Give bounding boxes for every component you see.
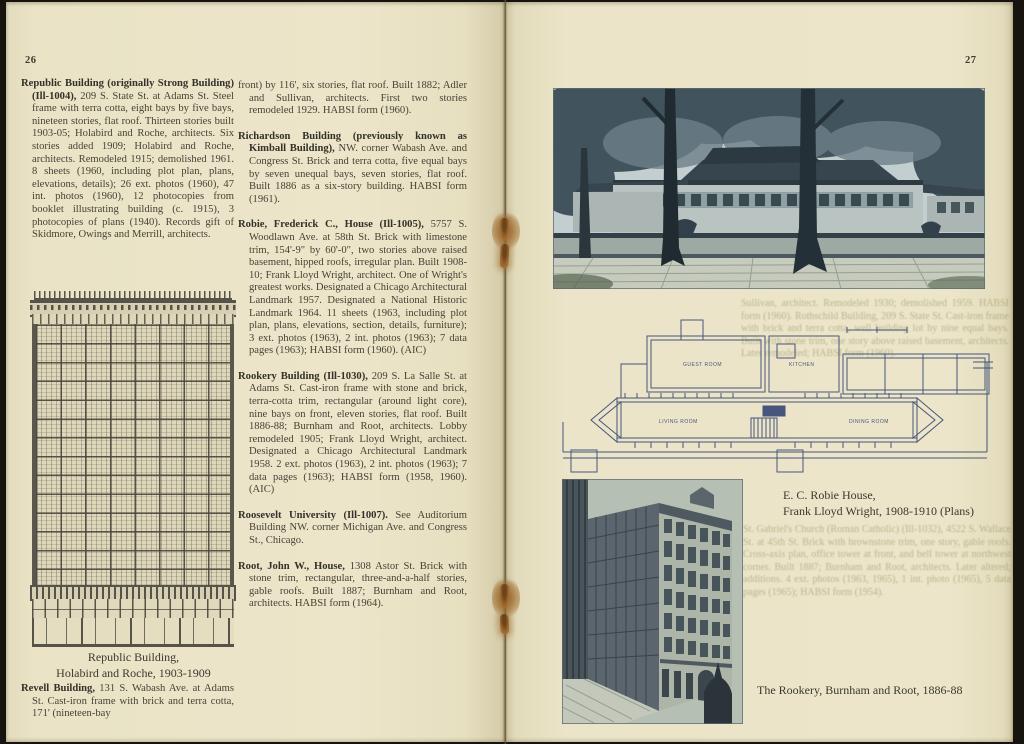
entry-2-heading: Robie, Frederick C., House (Ill-1005), [238,219,424,230]
entry-4-heading: Roosevelt University (Ill-1007). [238,510,388,521]
entry-revell-building: Revell Building, 131 S. Wabash Ave. at A… [21,683,234,721]
left-column-1: Republic Building (originally Strong Bui… [21,78,234,255]
entry-republic-building: Republic Building (originally Strong Bui… [21,78,234,242]
left-column-1-bottom: Revell Building, 131 S. Wabash Ave. at A… [21,683,234,734]
plan-room-label-dining: DINING ROOM [849,419,889,425]
rookery-caption: The Rookery, Burnham and Root, 1886-88 [757,682,1007,698]
robie-caption-line2: Frank Lloyd Wright, 1908-1910 (Plans) [783,503,1013,519]
left-column-2: front) by 116', six stories, flat roof. … [238,80,467,624]
staple-bottom-b [499,614,509,634]
page-number-left: 26 [25,55,37,66]
robie-floor-plan-art: GUEST ROOM KITCHEN LIVING ROOM DINING RO… [555,302,995,482]
entry-roosevelt-university: Roosevelt University (Ill-1007). See Aud… [238,510,467,548]
staple-top-a [500,218,509,240]
rookery-photo-art [562,479,743,724]
entry-rookery-building: Rookery Building (Ill-1030), 209 S. La S… [238,371,467,497]
republic-elevation-drawing [30,291,236,647]
drawing-storefront [32,618,234,647]
page-number-right: 27 [965,55,977,66]
robie-house-photo [553,88,985,289]
entry-root-house: Root, John W., House, 1308 Astor St. Bri… [238,561,467,611]
staple-bottom-a [500,584,509,608]
entry-richardson-building: Richardson Building (previously known as… [238,131,467,207]
robie-plan-caption: E. C. Robie House, Frank Lloyd Wright, 1… [783,487,1013,519]
right-page: 27 Sullivan, architect. Remodeled 1930; … [505,2,1013,742]
entry-3-heading: Rookery Building (Ill-1030), [238,371,368,382]
robie-floor-plan: GUEST ROOM KITCHEN LIVING ROOM DINING RO… [555,302,995,482]
rookery-photo [562,479,743,724]
drawing-roof-cresting [34,291,232,300]
entry-republic-text: 209 S. State St. at Adams St. Steel fram… [32,91,234,241]
left-page: 26 Republic Building (originally Strong … [6,2,505,742]
entry-continuation: front) by 116', six stories, flat roof. … [238,80,467,118]
plan-room-label-living: LIVING ROOM [659,419,698,425]
drawing-window-grid [32,324,234,589]
entry-0-text: front) by 116', six stories, flat roof. … [238,80,467,116]
robie-caption-line1: E. C. Robie House, [783,487,1013,503]
robie-house-photo-art [553,88,985,289]
entry-3-text: 209 S. La Salle St. at Adams St. Cast-ir… [249,371,467,495]
staple-top-b [499,244,509,268]
book-scan: 26 Republic Building (originally Strong … [0,0,1024,744]
entry-2-text: 5757 S. Woodlawn Ave. at 58th St. Brick … [249,219,467,356]
bleedthrough-text-lower: St. Gabriel's Church (Roman Catholic) (I… [743,524,1011,740]
plan-room-label-kitchen: KITCHEN [789,362,814,368]
drawing-caption: Republic Building, Holabird and Roche, 1… [31,649,236,681]
plan-room-label-guest: GUEST ROOM [683,362,722,368]
entry-5-heading: Root, John W., House, [238,561,345,572]
entry-robie-house: Robie, Frederick C., House (Ill-1005), 5… [238,219,467,358]
entry-revell-heading: Revell Building, [21,683,95,694]
drawing-caption-line1: Republic Building, [31,649,236,665]
drawing-caption-line2: Holabird and Roche, 1903-1909 [31,665,236,681]
